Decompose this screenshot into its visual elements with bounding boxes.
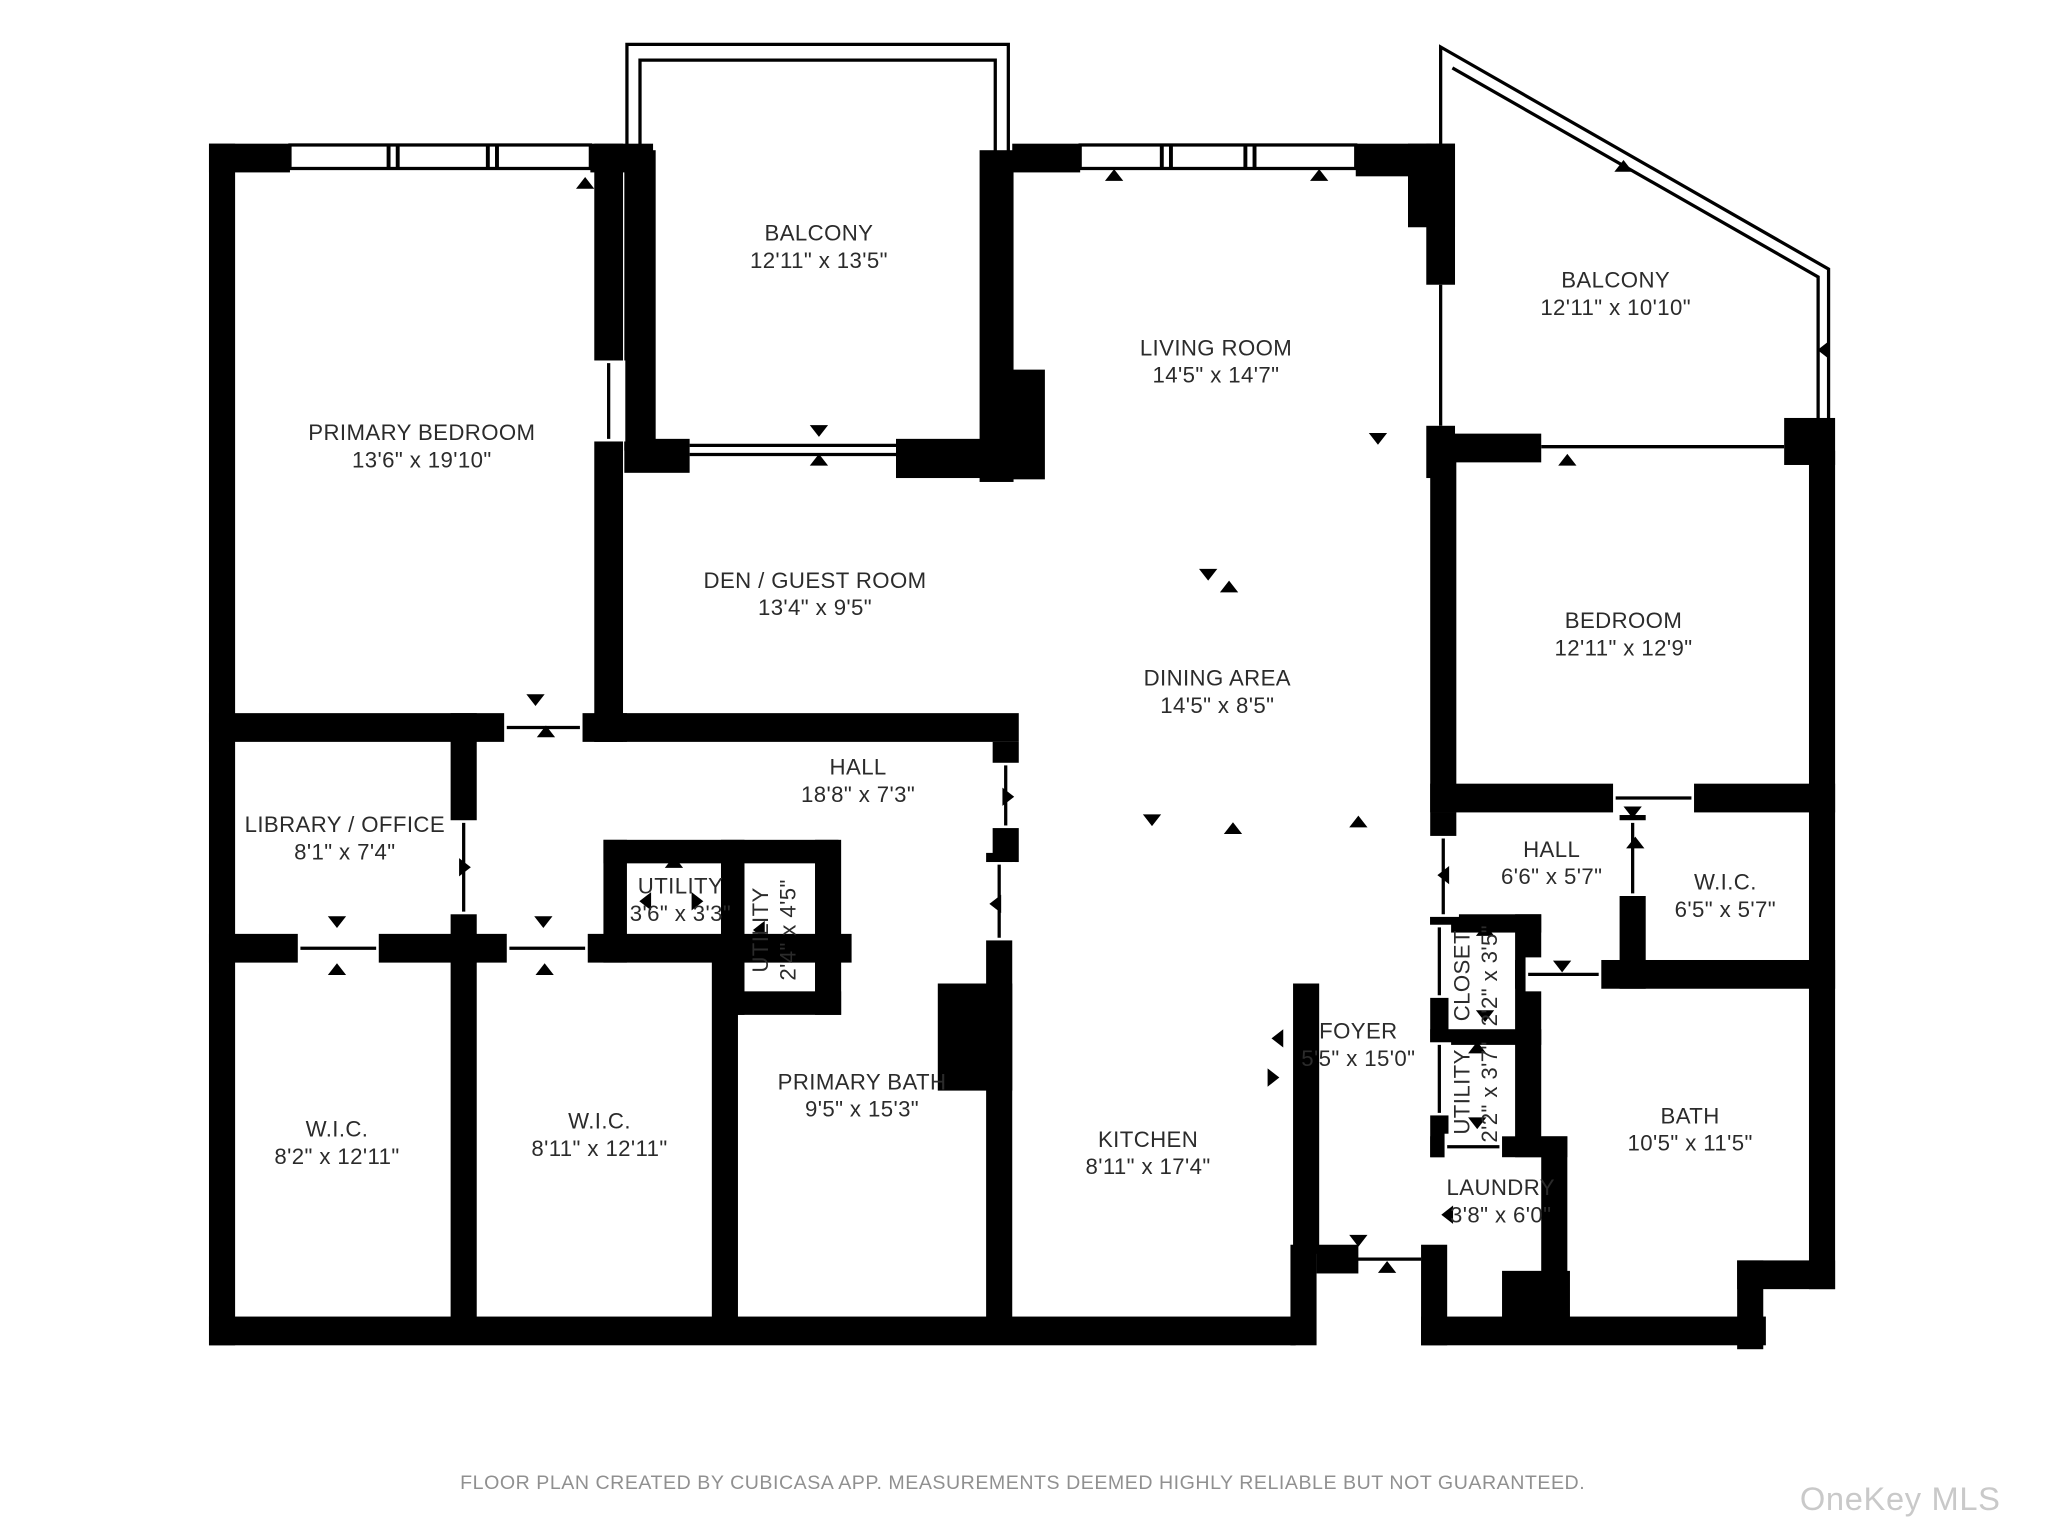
walls (209, 144, 1835, 1350)
footer-disclaimer: FLOOR PLAN CREATED BY CUBICASA APP. MEAS… (460, 1472, 1585, 1494)
window-symbols (290, 145, 1356, 169)
room-label-wic-3: W.I.C.6'5" x 5'7" (1675, 869, 1776, 924)
room-label-wic-2: W.I.C.8'11" x 12'11" (531, 1108, 667, 1163)
room-label-wic-1: W.I.C.8'2" x 12'11" (274, 1115, 399, 1170)
room-label-hall-2: HALL6'6" x 5'7" (1501, 836, 1602, 891)
room-label-foyer: FOYER5'5" x 15'0" (1301, 1017, 1415, 1072)
room-label-balcony-2: BALCONY12'11" x 10'10" (1540, 266, 1691, 321)
room-label-primary-bath: PRIMARY BATH9'5" x 15'3" (778, 1068, 947, 1123)
room-label-bath: BATH10'5" x 11'5" (1628, 1102, 1753, 1157)
floor-plan-drawing (0, 0, 2048, 1536)
room-label-dining-area: DINING AREA14'5" x 8'5" (1144, 665, 1291, 720)
room-label-closet: CLOSET2'2" x 3'5" (1448, 925, 1503, 1026)
mls-watermark: OneKey MLS (1800, 1481, 2001, 1519)
room-label-laundry: LAUNDRY3'8" x 6'0" (1446, 1174, 1554, 1229)
room-label-primary-bedroom: PRIMARY BEDROOM13'6" x 19'10" (308, 419, 535, 474)
room-label-utility-2: UTILITY2'4" x 4'5" (747, 879, 802, 980)
room-label-bedroom: BEDROOM12'11" x 12'9" (1555, 607, 1693, 662)
room-label-library-office: LIBRARY / OFFICE8'1" x 7'4" (245, 811, 445, 866)
room-label-den-guest-room: DEN / GUEST ROOM13'4" x 9'5" (704, 567, 927, 622)
room-label-living-room: LIVING ROOM14'5" x 14'7" (1140, 334, 1292, 389)
room-label-utility-3: UTILITY2'2" x 3'7" (1448, 1041, 1503, 1142)
room-label-utility-1: UTILITY3'6" x 3'3" (630, 872, 731, 927)
floor-plan-page: PRIMARY BEDROOM13'6" x 19'10" BALCONY12'… (0, 0, 2048, 1536)
room-label-hall-1: HALL18'8" x 7'3" (801, 754, 915, 809)
room-label-kitchen: KITCHEN8'11" x 17'4" (1085, 1126, 1210, 1181)
room-label-balcony-1: BALCONY12'11" x 13'5" (750, 219, 888, 274)
